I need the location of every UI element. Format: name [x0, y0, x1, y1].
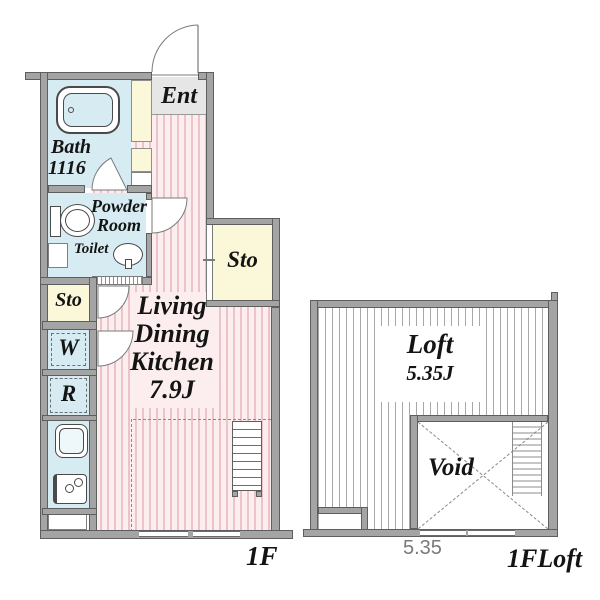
bath-size-label: 1116: [48, 158, 86, 179]
bathtub-drain-icon: [68, 107, 74, 113]
powder-cabinet: [48, 243, 68, 268]
loft-size-label: 5.35J: [378, 363, 482, 385]
toilet-label: Toilet: [74, 242, 108, 258]
stairs-1f-icon: [232, 421, 262, 491]
loft-width-dimension: 5.35: [403, 537, 442, 560]
wall-loft-niche-right: [361, 507, 368, 530]
powder-room-line1: Powder: [91, 196, 147, 216]
shoe-cabinet-upper: [131, 80, 152, 142]
ldk-line1: Living: [137, 291, 206, 320]
wall-loft-left: [310, 300, 318, 537]
stove-burner2-icon: [74, 478, 83, 487]
wall-loft-corner-notch: [551, 292, 558, 301]
wall-storage-right-top: [206, 218, 280, 225]
exterior-mask: [214, 80, 271, 218]
wall-kitchen-bottom: [42, 508, 97, 515]
entrance-door-arc: [152, 25, 198, 72]
powder-room-line2: Room: [97, 215, 141, 235]
kitchen-sink-inner-icon: [59, 428, 84, 454]
kitchen-lower-niche: [48, 514, 87, 530]
entrance-threshold: [152, 74, 198, 76]
wall-corridor-right: [206, 72, 214, 225]
stairs-foot-left: [232, 491, 238, 497]
wall-top: [40, 72, 152, 80]
wall-ldk-right: [271, 307, 280, 532]
wall-refrigerator-kitchen: [42, 415, 97, 421]
loft-niche: [322, 513, 362, 529]
wall-storage-right-bottom: [206, 300, 280, 307]
wall-left-column-divider: [89, 277, 97, 538]
entrance-label: Ent: [152, 84, 206, 109]
storage-right-label: Sto: [213, 248, 272, 272]
wall-sto-washer: [42, 321, 97, 330]
bath-label: Bath: [51, 137, 91, 158]
floor-1f-label: 1F: [246, 542, 278, 570]
window-loft-left: [420, 530, 466, 536]
ldk-line3: Kitchen: [130, 347, 214, 376]
wall-storage-right-side: [272, 218, 280, 307]
storage-left-label: Sto: [48, 290, 89, 311]
ldk-size: 7.9J: [149, 375, 195, 404]
floor-plan-canvas: Ent Bath 1116 Powder Room Toilet Sto W R…: [0, 0, 600, 600]
refrigerator-label: R: [48, 382, 89, 406]
stairs-foot-right: [256, 491, 262, 497]
wall-left: [40, 72, 48, 538]
stairs-loft-icon: [512, 422, 542, 496]
void-label: Void: [428, 455, 474, 481]
wall-void-top: [410, 415, 548, 422]
floor-loft-label: 1FLoft: [507, 545, 582, 572]
shoe-cabinet-lower: [131, 148, 152, 172]
wall-loft-top: [310, 300, 558, 308]
stove-burner1-icon: [65, 484, 74, 493]
window-1f-left: [139, 531, 188, 537]
ldk-line2: Dining: [134, 319, 209, 348]
wall-washer-refrigerator: [42, 369, 97, 376]
washer-label: W: [48, 336, 89, 360]
loft-outline-dashed-vertical: [131, 419, 132, 532]
powder-room-label: Powder Room: [80, 197, 158, 234]
wall-loft-right: [548, 300, 558, 537]
loft-label: Loft: [378, 330, 482, 358]
wall-bath-bottom-left: [48, 185, 85, 193]
storage-right-sliding-door: [206, 225, 213, 300]
accordion-door: [92, 276, 143, 285]
window-loft-right: [468, 530, 515, 536]
wall-powder-right-lower: [146, 233, 152, 277]
basin-tap-icon: [125, 259, 132, 269]
loft-outline-dashed-horizontal: [133, 419, 271, 420]
wall-void-left: [410, 415, 418, 529]
ldk-label: Living Dining Kitchen 7.9J: [128, 292, 216, 404]
window-1f-right: [193, 531, 240, 537]
wall-bath-bottom-right: [127, 185, 152, 193]
